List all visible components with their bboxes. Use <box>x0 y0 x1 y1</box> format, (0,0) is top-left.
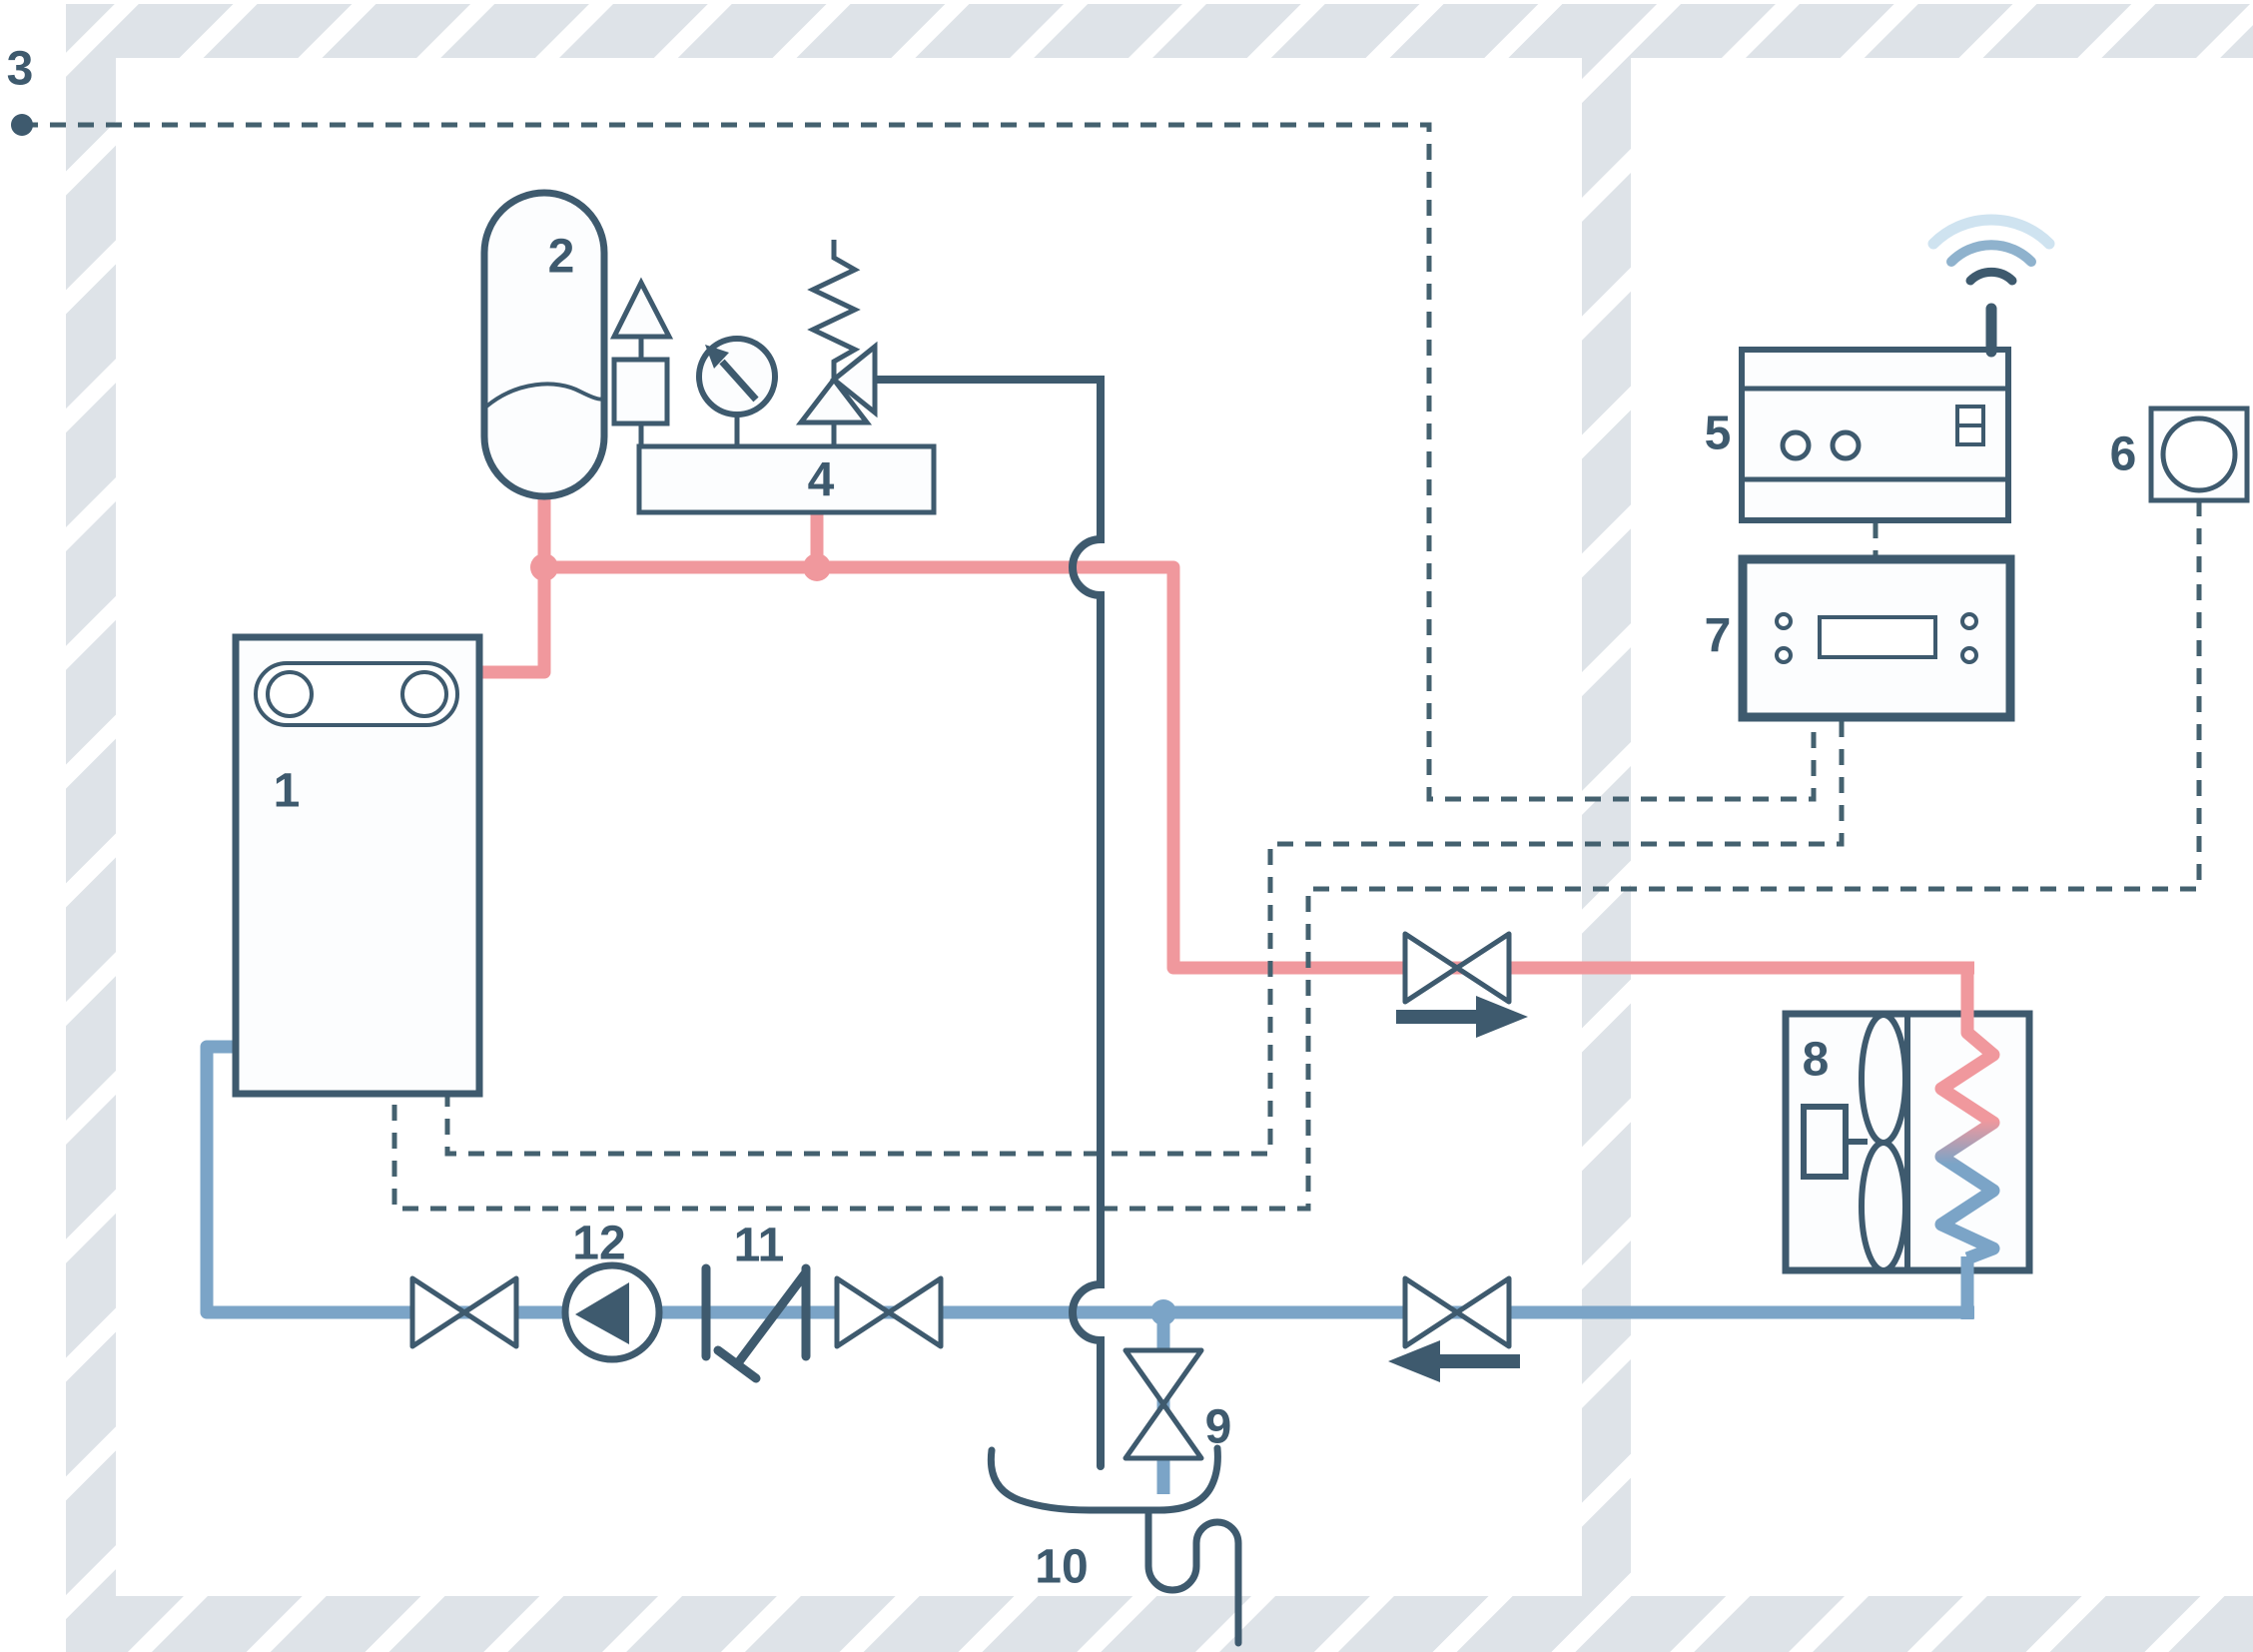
indicator-light-icon <box>1833 432 1859 458</box>
display-icon <box>1820 617 1935 657</box>
indoor-unit: 1 <box>236 637 479 1094</box>
wall-middle <box>1582 4 1631 1652</box>
drain-valve: 9 <box>1126 1350 1231 1458</box>
indicator-light-icon <box>1783 432 1809 458</box>
outdoor-unit-label: 8 <box>1803 1034 1830 1087</box>
connection-port-icon <box>402 672 446 716</box>
fan-icon <box>1862 1015 1905 1143</box>
return-shutoff-valve-1 <box>412 1278 516 1346</box>
wall-left <box>66 4 116 1652</box>
dial-icon <box>2163 418 2235 490</box>
gateway-label: 5 <box>1705 408 1732 460</box>
outdoor-unit: 8 <box>1786 962 2029 1319</box>
connection-port-icon <box>268 672 312 716</box>
wire-controller-to-indoor-unit <box>447 721 1842 1154</box>
expansion-vessel: 2 <box>484 193 604 496</box>
schematic-page: 1 2 3 4 <box>0 0 2253 1652</box>
controller-label: 7 <box>1705 610 1732 663</box>
pressure-gauge-icon <box>699 339 775 414</box>
pump: 12 <box>565 1218 659 1359</box>
supply-pipe-boiler-riser <box>479 496 544 672</box>
strainer: 11 <box>706 1220 806 1378</box>
drain-funnel-label: 10 <box>1035 1541 1088 1594</box>
button-icon <box>1777 614 1791 628</box>
room-sensor-label: 6 <box>2110 428 2137 481</box>
room-sensor: 6 <box>2110 409 2247 500</box>
button-icon <box>1962 648 1976 662</box>
button-icon <box>1777 648 1791 662</box>
wall-top <box>66 4 2253 58</box>
safety-group-label: 4 <box>808 454 835 507</box>
pump-label: 12 <box>572 1218 625 1270</box>
gateway: 5 <box>1705 220 2049 520</box>
strainer-label: 11 <box>734 1220 785 1272</box>
safety-manifold <box>639 446 934 512</box>
heating-schematic: 1 2 3 4 <box>0 0 2253 1652</box>
return-shutoff-valve-2 <box>837 1278 941 1346</box>
expansion-vessel-label: 2 <box>548 231 575 284</box>
indoor-unit-label: 1 <box>274 765 301 818</box>
compressor-icon <box>1804 1107 1846 1177</box>
return-junction-drain <box>1150 1299 1176 1325</box>
wall-bottom <box>66 1596 2253 1652</box>
connector-port-icon <box>1957 407 1983 444</box>
fan-icon <box>1862 1143 1905 1270</box>
wifi-icon <box>1933 220 2049 281</box>
outdoor-sensor: 3 <box>7 43 34 136</box>
controller: 7 <box>1705 559 2010 717</box>
sensor-dot-icon <box>11 114 33 136</box>
supply-junction-vessel <box>530 553 558 581</box>
supply-junction-safety <box>803 553 831 581</box>
supply-flow-valve <box>1396 934 1528 1038</box>
safety-relief-valve-icon <box>801 240 875 422</box>
button-icon <box>1962 614 1976 628</box>
return-flow-valve <box>1388 1278 1520 1382</box>
outdoor-sensor-label: 3 <box>7 43 34 96</box>
